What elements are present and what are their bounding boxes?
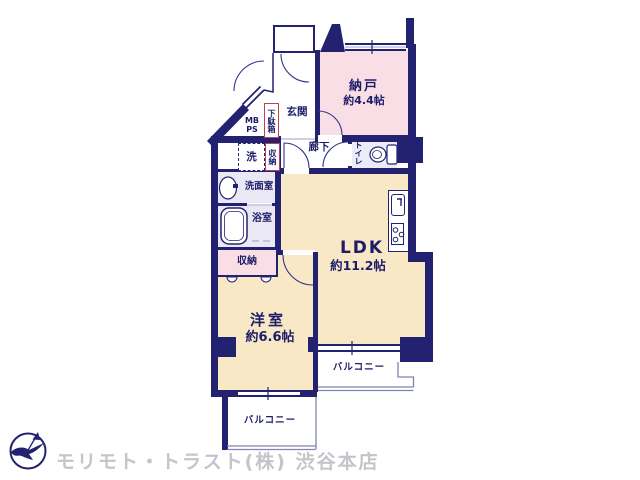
- toilet-tank: [387, 145, 397, 164]
- closet-bump-2: [261, 277, 271, 282]
- porch-side-line: [264, 53, 273, 92]
- sink-faucet: [233, 184, 238, 188]
- wall-entrance-diagonal: [207, 104, 249, 147]
- entrance-door-leaf: [243, 87, 265, 109]
- balcony-right-outline: [318, 362, 414, 391]
- wall-nando-corner: [320, 24, 345, 52]
- closet-bump-1: [227, 277, 237, 282]
- toilet-door-gap: [348, 144, 352, 166]
- ldk-door-gap: [284, 168, 309, 174]
- stove-burner-3: [393, 237, 398, 242]
- floor-plan: 下駄箱 収納 洗 MB PS トイレ 納戸 約4.4帖 玄関 廊下 LDK 約1…: [0, 0, 640, 480]
- toilet-door-arc: [323, 142, 348, 167]
- balcony-bottom-outline: [227, 397, 316, 450]
- logo-needle-head: [33, 432, 41, 440]
- nando-door-gap: [318, 135, 342, 142]
- stove-burner-2: [399, 232, 404, 237]
- plan-overlay: [0, 0, 640, 480]
- kitchen-faucet: [397, 199, 402, 206]
- company-logo: [11, 432, 46, 469]
- porch-door-arc: [281, 54, 309, 82]
- nando-door-arc: [318, 111, 342, 135]
- western-door-arc: [283, 255, 313, 285]
- ldk-door-arc: [284, 143, 309, 168]
- stove-burner-1: [393, 228, 398, 233]
